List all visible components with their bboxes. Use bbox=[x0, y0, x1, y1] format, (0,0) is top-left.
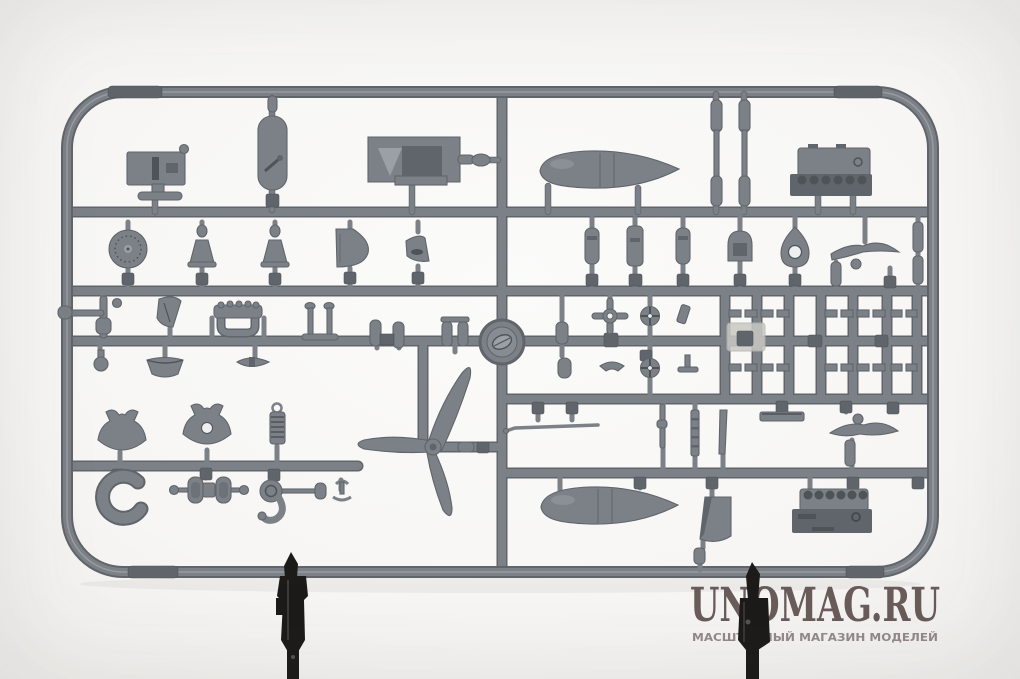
sprue-photo: UNOMAG.RU МАСШТАБНЫЙ МАГАЗИН МОДЕЛЕЙ bbox=[0, 0, 1020, 679]
control-horn-right bbox=[261, 225, 289, 267]
pitot-strip bbox=[504, 425, 599, 434]
twin-post-stand bbox=[302, 303, 338, 341]
sprue-photo-background: UNOMAG.RU МАСШТАБНЫЙ МАГАЗИН МОДЕЛЕЙ bbox=[0, 0, 1020, 679]
main-wheel-disc bbox=[109, 230, 147, 268]
coil-spring-part bbox=[270, 404, 285, 445]
exhaust-manifold bbox=[214, 301, 262, 333]
spoked-wheel-upper bbox=[641, 307, 660, 326]
center-logo-boss bbox=[480, 320, 524, 364]
wing-bracket-lower bbox=[830, 414, 898, 466]
small-fairing bbox=[406, 236, 429, 261]
eyelet-bracket bbox=[781, 227, 809, 267]
clear-insert-part bbox=[727, 323, 765, 351]
bowl-fairing bbox=[147, 358, 183, 378]
strut-column-pair bbox=[711, 100, 750, 206]
ball-pommel bbox=[94, 350, 108, 371]
hook-disc-part bbox=[258, 480, 351, 520]
spoked-wheel-lower bbox=[641, 359, 660, 378]
drop-tank-upper bbox=[540, 151, 679, 188]
curved-flap bbox=[157, 297, 181, 327]
control-horn-left bbox=[188, 225, 216, 267]
watermark-title: UNOMAG.RU bbox=[690, 578, 940, 633]
piston-cap-part bbox=[728, 231, 752, 261]
oval-access-panel bbox=[258, 96, 287, 190]
drop-tank-lower bbox=[541, 487, 678, 524]
instrument-panel bbox=[127, 145, 189, 201]
horseshoe-mount bbox=[103, 476, 141, 518]
wing-fairing bbox=[336, 229, 368, 267]
wheel-axle-assembly bbox=[170, 477, 249, 503]
bomb-rack-assembly bbox=[368, 137, 490, 185]
engine-block-upper bbox=[790, 144, 872, 196]
cross-joint-part bbox=[592, 298, 628, 334]
flat-plate-part bbox=[760, 412, 804, 421]
watermark: UNOMAG.RU МАСШТАБНЫЙ МАГАЗИН МОДЕЛЕЙ bbox=[690, 578, 940, 644]
mini-blade-part bbox=[237, 357, 269, 367]
cowl-flap-left bbox=[98, 410, 146, 450]
narrow-strips bbox=[657, 404, 727, 456]
air-scoop bbox=[694, 497, 731, 564]
cowl-flap-right bbox=[183, 404, 231, 444]
engine-block-lower bbox=[792, 489, 872, 533]
watermark-subtitle: МАСШТАБНЫЙ МАГАЗИН МОДЕЛЕЙ bbox=[692, 631, 938, 644]
